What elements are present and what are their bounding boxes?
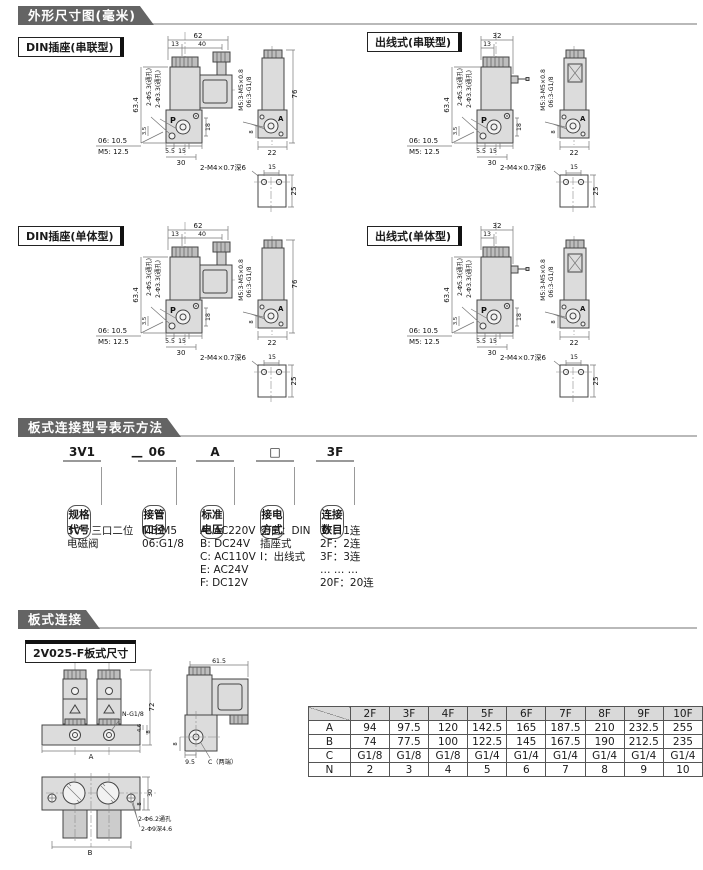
note-port-06: 06: 10.5 xyxy=(98,327,127,335)
mount-note: 2-M4×0.7深6 xyxy=(200,353,246,362)
manifold-bottom-view: 30 8 2-Φ6.2通孔 2-Φ9深4.6 B xyxy=(42,773,172,857)
dim-label: 30 xyxy=(488,159,497,167)
dim-label: 3.5 xyxy=(142,127,148,135)
dim-label: 30 xyxy=(177,159,186,167)
table-cell: G1/4 xyxy=(507,749,546,763)
port-label-a: A xyxy=(580,305,586,313)
code-options: A: AC220V B: DC24V C: AC110V E: AC24V F:… xyxy=(200,525,256,590)
table-cell: 120 xyxy=(429,721,468,735)
port-label-p: P xyxy=(481,306,487,315)
manifold-drawing: N-G1/8 72 A 4.6 8 61.5 8 9.5 C（两端） xyxy=(20,655,320,865)
dim-label: 15 xyxy=(178,148,186,155)
table-cell: 5 xyxy=(468,763,507,777)
table-row: A9497.5120142.5165187.5210232.5255 xyxy=(309,721,703,735)
dim-label: 76 xyxy=(291,279,299,288)
table-cell: G1/8 xyxy=(389,749,428,763)
manifold-front-view: N-G1/8 72 A 4.6 8 xyxy=(42,663,156,761)
dim-label: 40 xyxy=(198,41,206,48)
dim-label: 5.5 xyxy=(165,338,175,345)
dim-label: 63.4 xyxy=(443,287,451,303)
manifold-port-note: N-G1/8 xyxy=(122,711,144,718)
code-options: M5:M5 06:G1/8 xyxy=(142,525,184,551)
dim-label: 30 xyxy=(177,349,186,357)
dim-label: 18 xyxy=(205,313,212,321)
table-col-header: 2F xyxy=(350,707,389,721)
table-col-header: 9F xyxy=(624,707,663,721)
side-view: A M5:3-M5×0.8 06:3-G1/8 8 22 xyxy=(540,46,589,157)
table-cell: 122.5 xyxy=(468,735,507,749)
dim-label: 2-Φ3.3(通孔) xyxy=(154,260,162,298)
dim-label: 22 xyxy=(570,149,579,157)
note-port-06: 06: 10.5 xyxy=(98,137,127,145)
dim-label: 13 xyxy=(171,41,179,48)
connector-line xyxy=(176,467,177,505)
table-cell: 100 xyxy=(429,735,468,749)
dim-label: 8 xyxy=(173,742,179,745)
dim-label: M5:3-M5×0.8 xyxy=(238,69,245,111)
table-col-header: 6F xyxy=(507,707,546,721)
table-col-header: 4F xyxy=(429,707,468,721)
table-cell: 3 xyxy=(389,763,428,777)
port-label-p: P xyxy=(170,306,176,315)
code-value: A xyxy=(196,445,234,462)
dim-label: 3.5 xyxy=(142,317,148,325)
dim-label: 30 xyxy=(147,789,154,797)
dim-label: 62 xyxy=(194,32,203,40)
table-cell: 165 xyxy=(507,721,546,735)
hole-note-counterbore: 2-Φ9深4.6 xyxy=(141,825,172,833)
table-cell: 97.5 xyxy=(389,721,428,735)
code-value: 3V1 xyxy=(63,445,101,462)
table-cell: 9 xyxy=(624,763,663,777)
code-group-electrical: □ 接电方式 空白：DIN 插座式 I：出线式 xyxy=(256,445,294,462)
mount-note: 2-M4×0.7深6 xyxy=(500,163,546,172)
table-cell: 142.5 xyxy=(468,721,507,735)
code-options: 1F：1连 2F：2连 3F：3连 … … … 20F：20连 xyxy=(320,525,374,590)
table-cell: G1/8 xyxy=(350,749,389,763)
dim-label: 8 xyxy=(249,320,255,323)
table-row: CG1/8G1/8G1/8G1/4G1/4G1/4G1/4G1/4G1/4 xyxy=(309,749,703,763)
dim-label: 5.5 xyxy=(165,148,175,155)
port-label-p: P xyxy=(170,116,176,125)
code-value: 06 xyxy=(138,445,176,462)
port-label-p: P xyxy=(481,116,487,125)
note-port-m5: M5: 12.5 xyxy=(98,148,129,156)
model-code-diagram: — 3V1 规格代号 3V：三口二位 电磁阀 06 接管口径 M5:M5 06:… xyxy=(0,445,703,605)
manifold-side-view: 61.5 8 9.5 C（两端） xyxy=(173,658,248,766)
dim-label: 15 xyxy=(489,338,497,345)
dim-label: 25 xyxy=(290,187,298,196)
dim-label: 5.5 xyxy=(476,338,486,345)
dim-label: 30 xyxy=(488,349,497,357)
connector-line xyxy=(101,467,102,505)
table-cell: 187.5 xyxy=(546,721,585,735)
code-group-voltage: A 标准电压 A: AC220V B: DC24V C: AC110V E: A… xyxy=(196,445,234,462)
connector-line xyxy=(354,467,355,505)
section-header-dimensions: 外形尺寸图(毫米) xyxy=(18,6,154,25)
drawing-title-wire-single: 出线式(单体型) xyxy=(367,226,462,246)
table-col-header: 7F xyxy=(546,707,585,721)
dim-label: 15 xyxy=(268,354,276,361)
dim-label: 22 xyxy=(570,339,579,347)
side-view: A M5:3-M5×0.8 06:3-G1/8 76 8 22 xyxy=(238,236,299,347)
note-port-06: 06: 10.5 xyxy=(409,137,438,145)
drawing-title-wire-series: 出线式(串联型) xyxy=(367,32,462,52)
table-cell: G1/4 xyxy=(585,749,624,763)
port-label-a: A xyxy=(278,115,284,123)
dim-label: 25 xyxy=(592,377,600,386)
dim-label: 15 xyxy=(268,164,276,171)
dim-label: 76 xyxy=(291,89,299,98)
dim-label: 5.5 xyxy=(476,148,486,155)
dim-label: 2-Φ3.3(通孔) xyxy=(154,70,162,108)
dim-label: 32 xyxy=(493,222,502,230)
dim-label: 22 xyxy=(268,339,277,347)
dim-label: 63.4 xyxy=(132,97,140,113)
dim-label: 2-Φ5.3(通孔) xyxy=(456,258,464,296)
note-port-06: 06: 10.5 xyxy=(409,327,438,335)
port-label-a: A xyxy=(278,305,284,313)
dim-label: 8 xyxy=(551,130,557,133)
code-options: 空白：DIN 插座式 I：出线式 xyxy=(260,525,311,564)
port-label-a: A xyxy=(580,115,586,123)
table-cell: 94 xyxy=(350,721,389,735)
dim-label: 18 xyxy=(516,313,523,321)
wire-series-drawing: 32 13 P 2-Φ5.3(通孔) 2-Φ3.3(通孔) 63.4 3.5 1… xyxy=(360,30,703,215)
table-cell: 2 xyxy=(350,763,389,777)
table-cell: 232.5 xyxy=(624,721,663,735)
mounting-view: 2-M4×0.7深6 15 25 xyxy=(500,353,600,402)
table-corner-cell xyxy=(309,707,351,721)
drawing-title-din-series: DIN插座(串联型) xyxy=(18,37,124,57)
table-cell: G1/8 xyxy=(429,749,468,763)
dim-label: 9.5 xyxy=(185,759,195,766)
table-cell: G1/4 xyxy=(624,749,663,763)
dim-label: 13 xyxy=(483,41,491,48)
dim-label: 2-Φ5.3(通孔) xyxy=(145,258,153,296)
table-cell: G1/4 xyxy=(468,749,507,763)
dim-label: 22 xyxy=(268,149,277,157)
dim-label: 2-Φ3.3(通孔) xyxy=(465,260,473,298)
dim-label: 40 xyxy=(198,231,206,238)
code-value: □ xyxy=(256,445,294,462)
dim-label: M5:3-M5×0.8 xyxy=(238,259,245,301)
section-header-model-code: 板式连接型号表示方法 xyxy=(18,418,181,437)
side-view: A M5:3-M5×0.8 06:3-G1/8 76 8 22 xyxy=(238,46,299,157)
dim-label: 25 xyxy=(592,187,600,196)
dim-label: 18 xyxy=(516,123,523,131)
note-port-m5: M5: 12.5 xyxy=(409,338,440,346)
dim-label: M5:3-M5×0.8 xyxy=(540,69,547,111)
connector-line xyxy=(234,467,235,505)
table-col-header: 5F xyxy=(468,707,507,721)
dim-label: 8 xyxy=(551,320,557,323)
dim-label: 15 xyxy=(178,338,186,345)
dim-label: 63.4 xyxy=(132,287,140,303)
dim-label: 15 xyxy=(489,148,497,155)
dim-label: 63.4 xyxy=(443,97,451,113)
din-single-drawing: 62 13 40 P 2-Φ5.3(通孔) 2-Φ3.3(通孔) 63.4 3.… xyxy=(0,220,352,405)
dimension-table: 2F3F4F5F6F7F8F9F10FA9497.5120142.5165187… xyxy=(308,706,703,777)
dim-label: A xyxy=(89,753,94,761)
dim-label: 13 xyxy=(483,231,491,238)
table-col-header: 10F xyxy=(663,707,702,721)
dim-label: 61.5 xyxy=(212,658,226,665)
dim-label: 06:3-G1/8 xyxy=(548,76,555,107)
dim-label: 72 xyxy=(148,703,156,712)
table-cell: 167.5 xyxy=(546,735,585,749)
section-rule xyxy=(20,627,697,629)
table-row: N2345678910 xyxy=(309,763,703,777)
code-group-port: 06 接管口径 M5:M5 06:G1/8 xyxy=(138,445,176,462)
table-cell: 74 xyxy=(350,735,389,749)
dim-label: 8 xyxy=(146,730,152,733)
mounting-view: 2-M4×0.7深6 15 25 xyxy=(500,163,600,212)
drawing-title-2v025f: 2V025-F板式尺寸 xyxy=(25,640,136,663)
dim-label: 3.5 xyxy=(453,317,459,325)
dim-label: 06:3-G1/8 xyxy=(246,76,253,107)
dim-label: M5:3-M5×0.8 xyxy=(540,259,547,301)
code-options: 3V：三口二位 电磁阀 xyxy=(67,525,133,551)
table-row: B7477.5100122.5145167.5190212.5235 xyxy=(309,735,703,749)
side-view: A M5:3-M5×0.8 06:3-G1/8 8 22 xyxy=(540,236,589,347)
table-cell: 7 xyxy=(546,763,585,777)
dim-label: B xyxy=(88,849,93,857)
page: { "colors":{"banner_bg":"#646464","banne… xyxy=(0,0,703,870)
dim-label: 32 xyxy=(493,32,502,40)
hole-note-through: 2-Φ6.2通孔 xyxy=(138,815,171,823)
table-col-header: 8F xyxy=(585,707,624,721)
connector-line xyxy=(294,467,295,505)
table-cell: 4 xyxy=(429,763,468,777)
table-cell: 77.5 xyxy=(389,735,428,749)
mounting-view: 2-M4×0.7深6 15 25 xyxy=(200,163,298,212)
table-cell: 235 xyxy=(663,735,702,749)
drawing-title-din-single: DIN插座(单体型) xyxy=(18,226,124,246)
table-cell: 8 xyxy=(585,763,624,777)
dim-label: 13 xyxy=(171,231,179,238)
code-value: 3F xyxy=(316,445,354,462)
note-port-m5: M5: 12.5 xyxy=(98,338,129,346)
dim-label: 3.5 xyxy=(453,127,459,135)
section-header-plate: 板式连接 xyxy=(18,610,100,629)
table-cell: 255 xyxy=(663,721,702,735)
mounting-view: 2-M4×0.7深6 15 25 xyxy=(200,353,298,402)
dim-label: 25 xyxy=(290,377,298,386)
table-cell: G1/4 xyxy=(663,749,702,763)
dim-label: 15 xyxy=(570,354,578,361)
table-cell: 210 xyxy=(585,721,624,735)
table-cell: 145 xyxy=(507,735,546,749)
manifold-end-port-note: C（两端） xyxy=(208,758,237,766)
din-series-drawing: 62 13 40 P 2-Φ5.3(通孔) 2-Φ3.3(通孔) 63.4 3.… xyxy=(0,30,352,215)
table-row-label: B xyxy=(309,735,351,749)
table-cell: 212.5 xyxy=(624,735,663,749)
dim-label: 15 xyxy=(570,164,578,171)
table-cell: 10 xyxy=(663,763,702,777)
dim-label: 18 xyxy=(205,123,212,131)
wire-single-drawing: 32 13 P 2-Φ5.3(通孔) 2-Φ3.3(通孔) 63.4 3.5 1… xyxy=(360,220,703,405)
mount-note: 2-M4×0.7深6 xyxy=(200,163,246,172)
code-group-stations: 3F 连接数目 1F：1连 2F：2连 3F：3连 … … … 20F：20连 xyxy=(316,445,354,462)
front-view: 32 13 P 2-Φ5.3(通孔) 2-Φ3.3(通孔) 63.4 3.5 1… xyxy=(407,32,529,167)
table-row-label: C xyxy=(309,749,351,763)
dim-label: 4.6 xyxy=(137,724,143,732)
mount-note: 2-M4×0.7深6 xyxy=(500,353,546,362)
table-cell: 190 xyxy=(585,735,624,749)
dim-label: 2-Φ5.3(通孔) xyxy=(145,68,153,106)
table-row-label: N xyxy=(309,763,351,777)
dim-label: 62 xyxy=(194,222,203,230)
table-cell: G1/4 xyxy=(546,749,585,763)
dim-label: 2-Φ5.3(通孔) xyxy=(456,68,464,106)
dim-label: 8 xyxy=(137,802,143,805)
table-cell: 6 xyxy=(507,763,546,777)
dim-label: 06:3-G1/8 xyxy=(246,266,253,297)
dim-label: 2-Φ3.3(通孔) xyxy=(465,70,473,108)
table-col-header: 3F xyxy=(389,707,428,721)
dim-label: 06:3-G1/8 xyxy=(548,266,555,297)
table-row-label: A xyxy=(309,721,351,735)
code-group-spec: 3V1 规格代号 3V：三口二位 电磁阀 xyxy=(63,445,101,462)
dim-label: 8 xyxy=(249,130,255,133)
note-port-m5: M5: 12.5 xyxy=(409,148,440,156)
